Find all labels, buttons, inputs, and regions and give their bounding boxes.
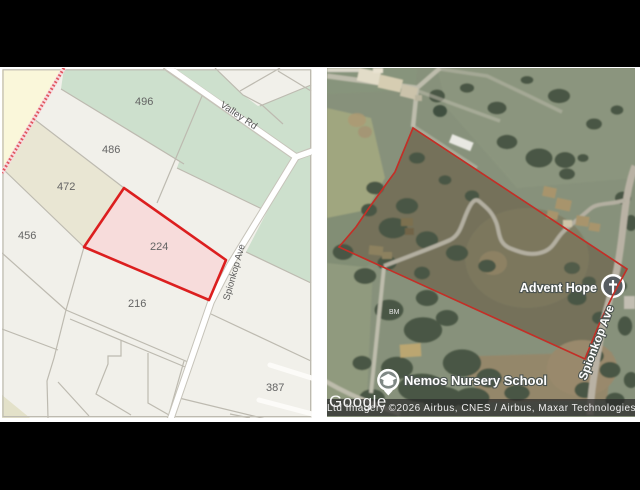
svg-text:BM: BM: [389, 309, 400, 316]
svg-text:486: 486: [102, 144, 120, 156]
svg-text:Ltd Imagery ©2026 Airbus, CNES: Ltd Imagery ©2026 Airbus, CNES / Airbus,…: [327, 403, 635, 414]
svg-text:224: 224: [150, 241, 168, 253]
svg-text:456: 456: [18, 230, 36, 242]
svg-text:472: 472: [57, 181, 75, 193]
svg-text:496: 496: [135, 96, 153, 108]
svg-text:387: 387: [266, 382, 284, 394]
svg-text:Nemos Nursery School: Nemos Nursery School: [404, 373, 547, 388]
svg-text:216: 216: [128, 298, 146, 310]
svg-text:Advent Hope: Advent Hope: [520, 281, 597, 295]
